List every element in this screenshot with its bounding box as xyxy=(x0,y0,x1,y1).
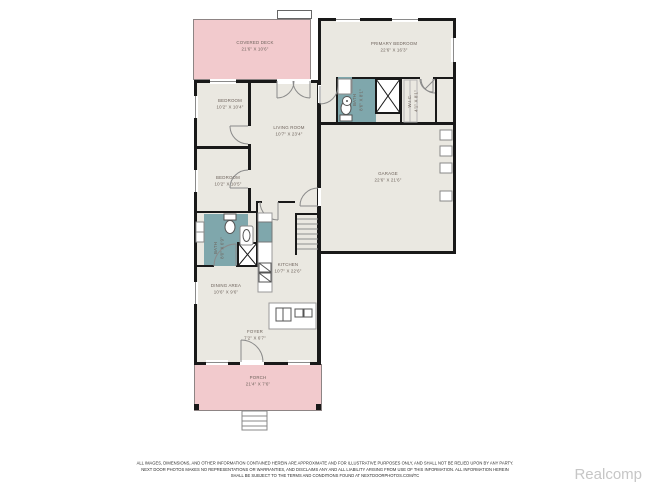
stove-icon xyxy=(304,309,312,317)
label-living-room: LIVING ROOM10'7" X 23'4" xyxy=(273,125,304,137)
label-kitchen: KITCHEN10'7" X 22'6" xyxy=(274,262,301,274)
vanity-icon xyxy=(240,226,253,245)
sink-icon xyxy=(338,79,352,106)
porch-steps-icon xyxy=(242,411,267,430)
label-bath: BATH8'0" X 6'9" xyxy=(213,237,225,259)
label-covered-deck: COVERED DECK21'6" X 10'6" xyxy=(236,40,273,52)
label-primary-bath: BATH8'6" X 8'1" xyxy=(352,89,364,111)
fridge-icon xyxy=(258,222,272,242)
label-foyer: FOYER7'2" X 6'7" xyxy=(244,329,266,341)
floor-plan-page: COVERED DECK21'6" X 10'6" PRIMARY BEDROO… xyxy=(0,0,650,488)
label-garage: GARAGE22'6" X 21'6" xyxy=(374,171,401,183)
stove-icon xyxy=(295,309,303,317)
kitchen-island xyxy=(269,303,316,329)
garage-shelves-icon xyxy=(440,130,452,201)
shower-icon xyxy=(376,79,400,113)
label-bedroom-1: BEDROOM10'2" X 10'4" xyxy=(216,98,243,110)
label-dining-area: DINING AREA10'6" X 9'6" xyxy=(211,283,241,295)
disclaimer-line: SHALL BE SUBJECT TO THE TERMS AND CONDIT… xyxy=(137,473,514,479)
label-porch: PORCH21'4" X 7'6" xyxy=(246,375,270,387)
shower-icon xyxy=(238,243,257,266)
disclaimer-line: ALL IMAGES, DIMENSIONS, AND OTHER INFORM… xyxy=(137,460,514,466)
closet-shelves-icon xyxy=(196,222,204,242)
porch-posts xyxy=(194,404,321,410)
fixtures-overlay xyxy=(0,0,650,488)
kitchen-counter xyxy=(258,213,272,292)
label-primary-bedroom: PRIMARY BEDROOM22'6" X 16'3" xyxy=(371,41,417,53)
disclaimer-text: ALL IMAGES, DIMENSIONS, AND OTHER INFORM… xyxy=(137,460,514,479)
realcomp-watermark: Realcomp xyxy=(574,466,642,483)
stairs-icon xyxy=(297,219,318,249)
label-bedroom-2: BEDROOM10'2" X 10'5" xyxy=(214,175,241,187)
label-wic: W.I.C.4'1" X 8'1" xyxy=(407,90,419,112)
toilet-icon xyxy=(224,214,236,234)
door-arcs xyxy=(214,79,435,362)
